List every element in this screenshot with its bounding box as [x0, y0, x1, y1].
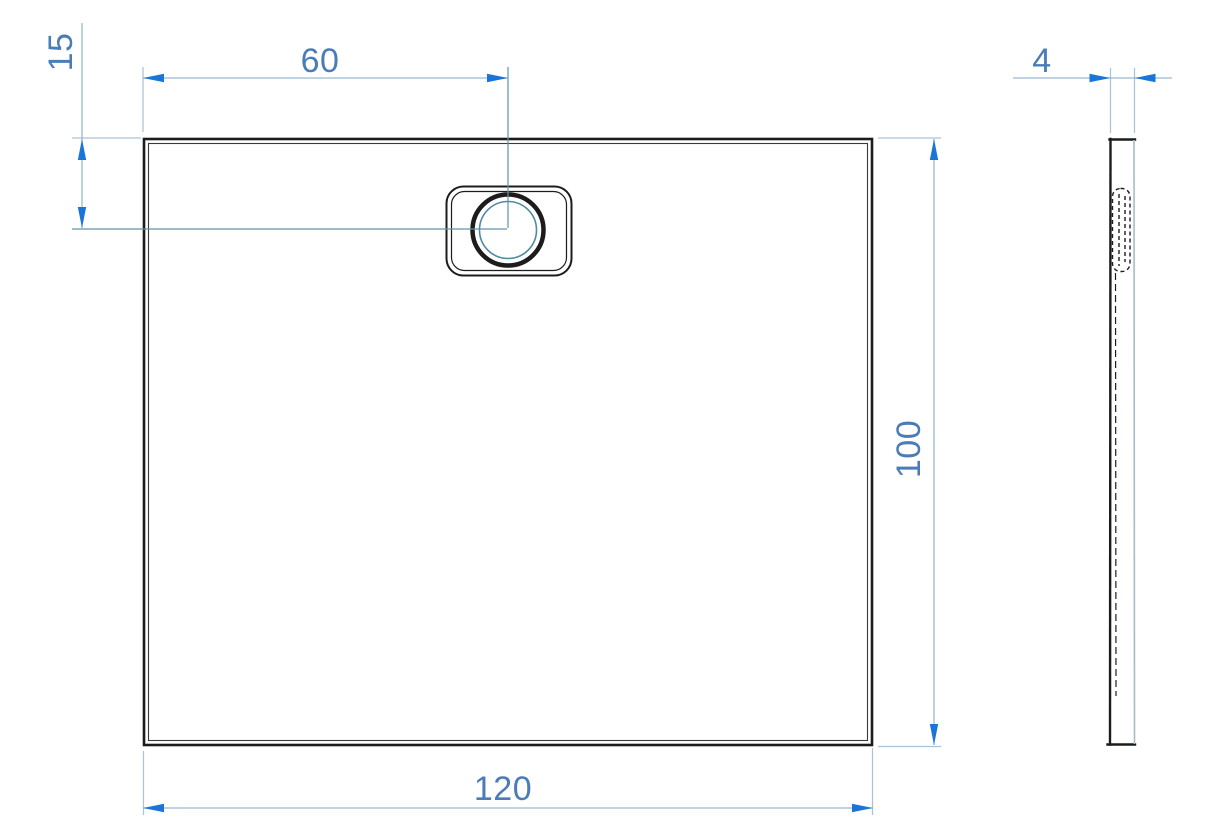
drawing-canvas: 60 15 100 120 — [0, 0, 1205, 830]
dim4-arrow-left — [1090, 74, 1111, 82]
dimension-tray-depth: 100 — [878, 138, 941, 747]
front-view — [72, 67, 872, 745]
dim15-value: 15 — [42, 33, 80, 72]
slab-left-edge — [1110, 139, 1111, 745]
dim4-value: 4 — [1032, 42, 1051, 80]
slab-body — [1110, 139, 1135, 745]
dim120-value: 120 — [474, 770, 532, 808]
dim120-arrow-right — [852, 804, 873, 812]
dim60-arrow-left — [143, 74, 164, 82]
dim60-arrow-right — [487, 74, 508, 82]
shower-tray-technical-drawing: 60 15 100 120 — [0, 0, 1205, 830]
dim60-value: 60 — [301, 42, 340, 80]
tray-outline — [144, 139, 872, 745]
dim120-arrow-left — [143, 804, 164, 812]
dimension-tray-thickness: 4 — [1013, 42, 1172, 133]
dim4-arrow-right — [1135, 74, 1156, 82]
dim100-arrow-bottom — [930, 724, 938, 745]
dim100-arrow-top — [930, 139, 938, 160]
side-view — [1108, 139, 1136, 745]
dimension-drain-from-left: 60 — [143, 42, 508, 132]
dimension-drain-from-top: 15 — [42, 23, 141, 228]
dim100-value: 100 — [890, 420, 928, 478]
dim15-arrow-bottom — [78, 207, 86, 228]
dimension-tray-width: 120 — [143, 748, 873, 815]
dim15-arrow-top — [78, 139, 86, 160]
slab-right-edge — [1134, 140, 1135, 744]
